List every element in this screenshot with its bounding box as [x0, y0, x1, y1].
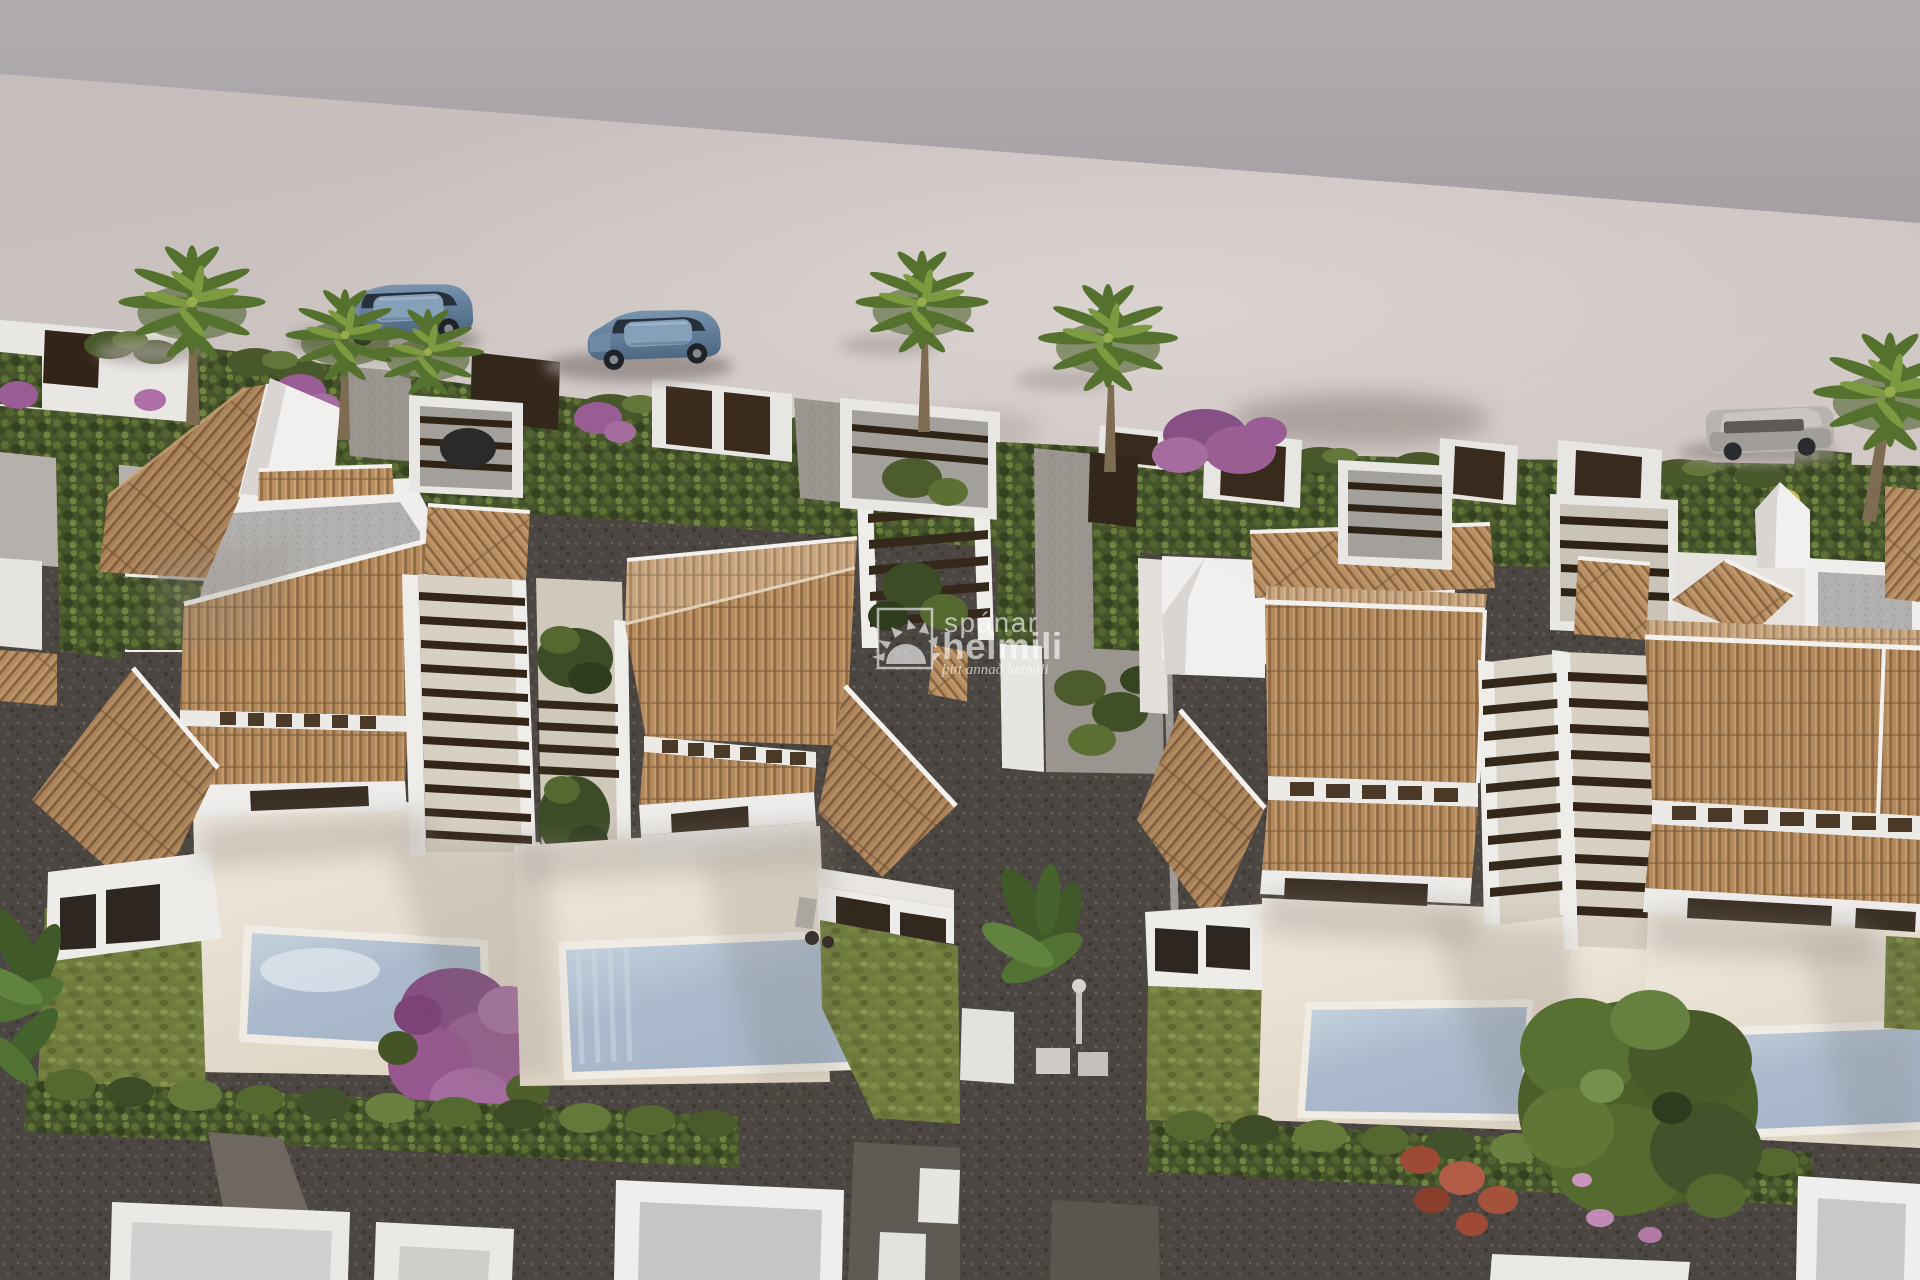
svg-text:þitt annað heimili: þitt annað heimili: [940, 662, 1049, 678]
svg-text:heimili: heimili: [942, 626, 1063, 667]
